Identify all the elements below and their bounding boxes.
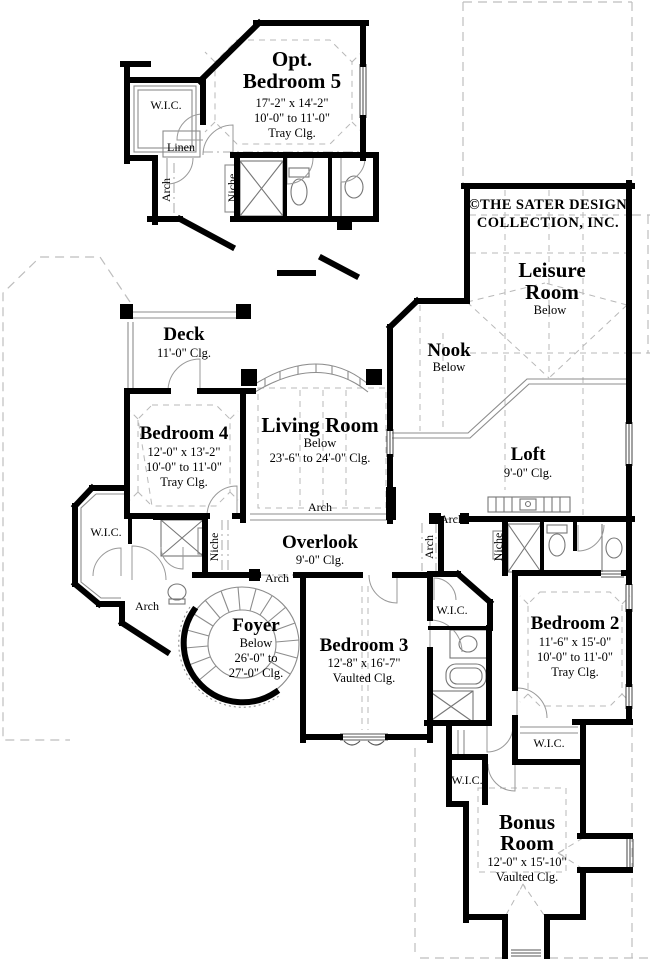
- door-swing: [207, 486, 237, 516]
- door-swing: [161, 547, 183, 569]
- bedroom4-ceil2: Tray Clg.: [160, 475, 207, 489]
- window: [626, 422, 632, 466]
- door-swing: [434, 578, 456, 600]
- bedroom4-name: Bedroom 4: [140, 423, 229, 444]
- bedroom2-dim: 11'-6" x 15'-0": [539, 635, 612, 649]
- bonus-dim: 12'-0" x 15'-10": [487, 855, 566, 869]
- floor-plan-page: ©THE SATER DESIGN COLLECTION, INC. Opt. …: [0, 0, 650, 967]
- bedroom4-dim: 12'-0" x 13'-2": [147, 445, 220, 459]
- sink-icon: [602, 524, 622, 572]
- bedroom4-ceil: 10'-0" to 11'-0": [146, 460, 222, 474]
- copyright-line1: ©THE SATER DESIGN: [469, 197, 628, 213]
- bedroom2-ceil2: Tray Clg.: [551, 665, 598, 679]
- deck-ceil: 11'-0" Clg.: [157, 346, 211, 360]
- shower-icon: [240, 161, 283, 216]
- door-swing: [517, 688, 547, 718]
- bedroom3-name: Bedroom 3: [320, 635, 409, 656]
- sink-icon: [341, 158, 363, 217]
- living-note: Below: [304, 436, 337, 450]
- opt-bedroom5-dim: 17'-2" x 14'-2": [255, 96, 328, 110]
- bonus-ceil: Vaulted Clg.: [496, 870, 559, 884]
- window: [626, 584, 632, 612]
- bedroom2-ceil: 10'-0" to 11'-0": [537, 650, 613, 664]
- door-swing: [177, 114, 203, 140]
- shower-icon: [508, 524, 541, 572]
- tub-icon: [446, 664, 486, 688]
- opt-bedroom5-ceil2: Tray Clg.: [268, 126, 315, 140]
- linen-label: Linen: [167, 140, 195, 154]
- bonus-name2: Room: [500, 831, 554, 855]
- window: [601, 571, 624, 577]
- door-swing: [488, 764, 515, 791]
- wic-label: W.I.C.: [436, 603, 467, 617]
- arch-label: Arch: [135, 599, 159, 613]
- nook-name: Nook: [427, 340, 471, 361]
- living-ceil: 23'-6" to 24'-0" Clg.: [270, 451, 371, 465]
- door-swing: [341, 158, 365, 182]
- living-name: Living Room: [261, 413, 379, 437]
- wic-label: W.I.C.: [451, 773, 482, 787]
- window-swag: [344, 741, 384, 745]
- opt-bedroom5-ceil: 10'-0" to 11'-0": [254, 111, 330, 125]
- wic-label: W.I.C.: [533, 736, 564, 750]
- foyer-name: Foyer: [232, 615, 280, 636]
- bedroom2-name: Bedroom 2: [531, 613, 620, 634]
- opt-bedroom5-name2: Bedroom 5: [243, 69, 341, 93]
- leisure-name1: Leisure: [518, 258, 585, 282]
- window: [340, 734, 388, 740]
- foyer-note: Below: [240, 636, 273, 650]
- wic-label: W.I.C.: [90, 525, 121, 539]
- toilet-icon: [168, 584, 186, 604]
- copyright-line2: COLLECTION, INC.: [477, 215, 619, 231]
- toilet-icon: [289, 168, 309, 205]
- door-swing: [487, 726, 513, 752]
- door-swing: [430, 620, 462, 652]
- window: [626, 684, 632, 709]
- foyer-ceil2: 27'-0" Clg.: [229, 666, 284, 680]
- deck-name: Deck: [163, 324, 205, 345]
- bedroom3-ceil: Vaulted Clg.: [333, 671, 396, 685]
- wic-label: W.I.C.: [150, 98, 181, 112]
- sink-icon: [450, 630, 488, 658]
- arch-label: Arch: [440, 512, 464, 526]
- nook-note: Below: [433, 360, 466, 374]
- labels: ©THE SATER DESIGN COLLECTION, INC. Opt. …: [90, 47, 627, 884]
- window: [511, 950, 541, 956]
- door-swing: [93, 548, 121, 576]
- window: [360, 64, 366, 118]
- arch-label: Arch: [159, 178, 173, 202]
- leisure-name2: Room: [525, 280, 579, 304]
- floor-plan: ©THE SATER DESIGN COLLECTION, INC. Opt. …: [0, 0, 650, 967]
- shower-icon: [161, 520, 203, 556]
- loft-name: Loft: [511, 444, 547, 465]
- overlook-name: Overlook: [282, 532, 358, 553]
- leisure-note: Below: [534, 303, 567, 317]
- foyer-ceil: 26'-0" to: [234, 651, 277, 665]
- overlook-ceil: 9'-0" Clg.: [296, 553, 344, 567]
- wet-bar: [488, 497, 570, 512]
- door-swing: [168, 359, 200, 391]
- opt-bedroom5-name1: Opt.: [272, 47, 312, 71]
- door-swing: [369, 575, 397, 603]
- niche-label: Niche: [491, 533, 505, 562]
- toilet-icon: [547, 525, 567, 556]
- loft-ceil: 9'-0" Clg.: [504, 466, 552, 480]
- door-swing: [287, 158, 313, 184]
- arch-label: Arch: [308, 500, 332, 514]
- arch-label: Arch: [422, 535, 436, 559]
- door-swing: [203, 125, 233, 155]
- door-swing: [578, 525, 604, 551]
- niche-label: Niche: [207, 533, 221, 562]
- bedroom3-dim: 12'-8" x 16'-7": [327, 656, 400, 670]
- niche-label: Niche: [225, 174, 239, 203]
- shower-icon: [429, 691, 473, 722]
- arch-label: Arch: [265, 571, 289, 585]
